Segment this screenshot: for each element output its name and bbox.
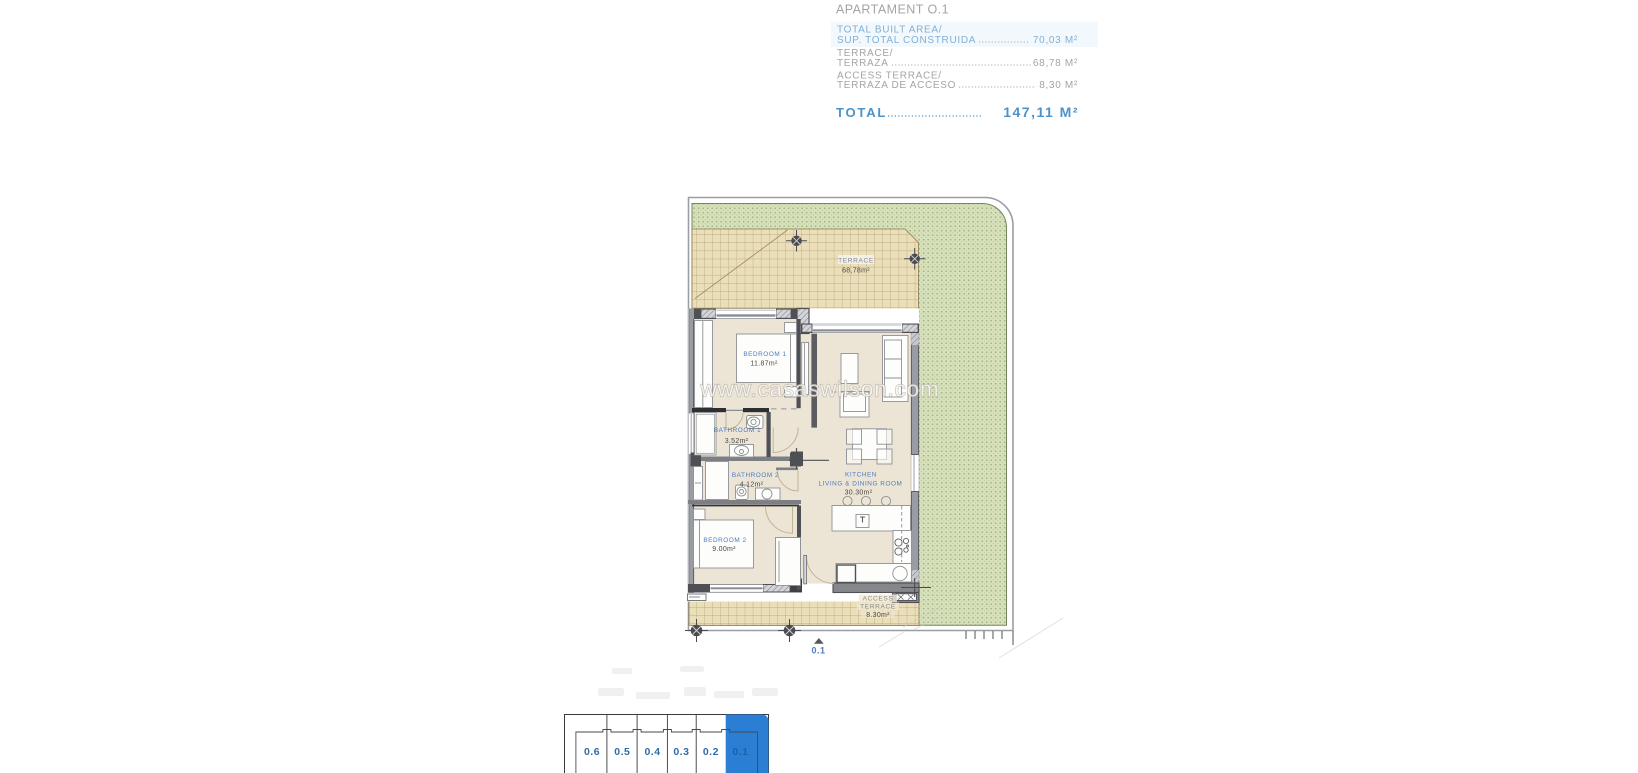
- svg-text:BEDROOM 2: BEDROOM 2: [703, 537, 746, 544]
- svg-text:TOTAL BUILT AREA/: TOTAL BUILT AREA/: [837, 25, 942, 36]
- svg-text:BATHROOM 2: BATHROOM 2: [732, 472, 779, 479]
- svg-text:TOTAL: TOTAL: [836, 105, 887, 120]
- svg-text:68,78 M²: 68,78 M²: [1033, 58, 1078, 69]
- svg-text:147,11 M²: 147,11 M²: [1003, 104, 1079, 120]
- svg-text:0.5: 0.5: [614, 746, 630, 758]
- svg-text:68,78m²: 68,78m²: [842, 268, 870, 275]
- svg-text:KITCHEN: KITCHEN: [845, 472, 877, 479]
- svg-text:BATHROOM 1: BATHROOM 1: [714, 427, 761, 434]
- svg-text:3.52m²: 3.52m²: [725, 438, 749, 445]
- svg-text:0.1: 0.1: [732, 746, 748, 758]
- svg-text:4.12m²: 4.12m²: [740, 482, 764, 489]
- svg-text:TERRACE: TERRACE: [860, 604, 896, 611]
- svg-text:0.3: 0.3: [673, 746, 689, 758]
- svg-text:ACCESS: ACCESS: [863, 596, 894, 603]
- svg-text:www.casaswilson.com: www.casaswilson.com: [699, 377, 939, 402]
- svg-text:0.1: 0.1: [811, 646, 825, 656]
- svg-text:9.00m²: 9.00m²: [712, 546, 736, 553]
- svg-text:TERRAZA: TERRAZA: [837, 58, 889, 69]
- svg-text:SUP. TOTAL CONSTRUIDA: SUP. TOTAL CONSTRUIDA: [837, 35, 976, 46]
- svg-text:8,30 M²: 8,30 M²: [1039, 80, 1078, 91]
- svg-text:0.4: 0.4: [644, 746, 660, 758]
- svg-text:LIVING & DINING ROOM: LIVING & DINING ROOM: [819, 481, 903, 488]
- svg-text:0.2: 0.2: [703, 746, 719, 758]
- svg-text:0.6: 0.6: [584, 746, 600, 758]
- svg-text:30.30m²: 30.30m²: [845, 490, 873, 497]
- svg-text:70,03 M²: 70,03 M²: [1033, 35, 1078, 46]
- svg-text:8.30m²: 8.30m²: [866, 612, 890, 619]
- svg-text:TERRACE: TERRACE: [838, 258, 874, 265]
- svg-text:TERRAZA DE ACCESO: TERRAZA DE ACCESO: [837, 80, 956, 91]
- svg-text:11.87m²: 11.87m²: [750, 361, 778, 368]
- svg-text:BEDROOM 1: BEDROOM 1: [743, 351, 786, 358]
- svg-text:APARTAMENT O.1: APARTAMENT O.1: [836, 3, 949, 17]
